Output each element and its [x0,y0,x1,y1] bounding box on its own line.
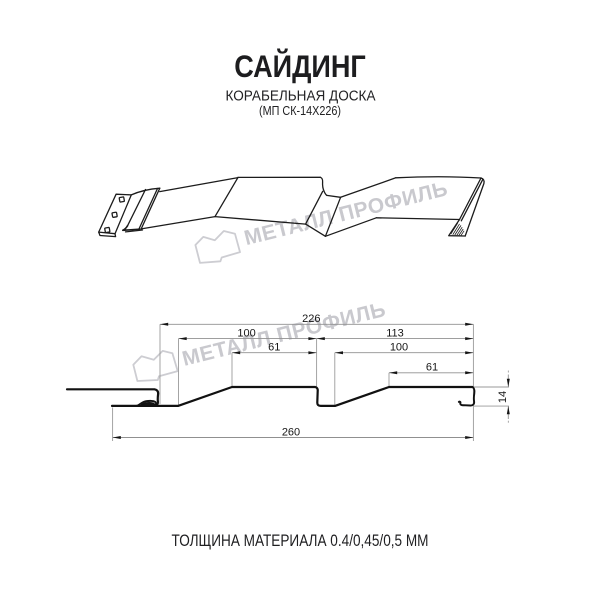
svg-text:61: 61 [268,341,280,353]
svg-text:113: 113 [386,327,404,339]
svg-text:61: 61 [426,362,438,374]
svg-text:100: 100 [390,341,408,353]
svg-text:226: 226 [302,313,320,325]
svg-text:САЙДИНГ: САЙДИНГ [234,48,366,84]
svg-text:14: 14 [497,391,509,403]
svg-text:100: 100 [237,327,255,339]
svg-text:ТОЛЩИНА МАТЕРИАЛА 0.4/0,45/0,5: ТОЛЩИНА МАТЕРИАЛА 0.4/0,45/0,5 ММ [172,531,429,550]
svg-text:260: 260 [282,427,300,439]
svg-text:КОРАБЕЛЬНАЯ ДОСКА: КОРАБЕЛЬНАЯ ДОСКА [226,87,376,104]
svg-text:(МП СК-14Х226): (МП СК-14Х226) [259,104,341,118]
